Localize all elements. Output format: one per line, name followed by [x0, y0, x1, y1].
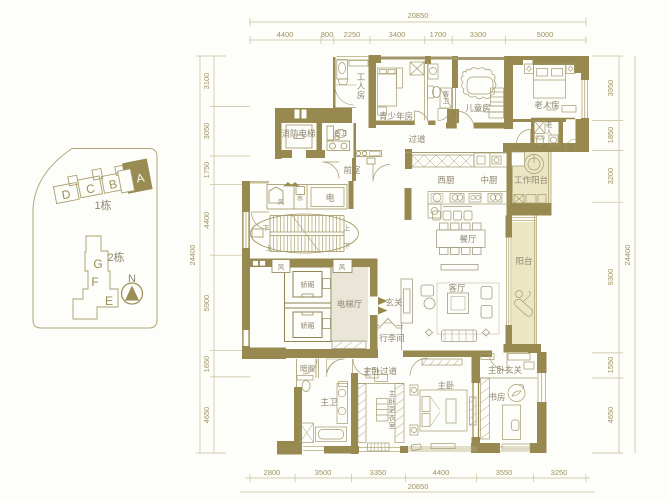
svg-text:主卧玄关: 主卧玄关 [488, 365, 523, 375]
svg-text:2栋: 2栋 [107, 250, 124, 264]
svg-text:更: 更 [389, 406, 396, 414]
svg-text:卧: 卧 [389, 398, 396, 406]
svg-text:1550: 1550 [606, 357, 615, 374]
svg-text:轿厢: 轿厢 [301, 280, 315, 289]
svg-text:风: 风 [339, 263, 346, 271]
svg-text:3300: 3300 [470, 30, 487, 39]
svg-text:卫: 卫 [443, 97, 450, 105]
svg-text:3400: 3400 [389, 30, 406, 39]
svg-text:2250: 2250 [344, 30, 361, 39]
svg-text:老人房: 老人房 [534, 100, 560, 110]
svg-text:工作阳台: 工作阳台 [514, 175, 548, 185]
svg-text:3250: 3250 [551, 468, 568, 477]
svg-text:儿童房: 儿童房 [465, 103, 491, 113]
svg-text:房: 房 [357, 90, 366, 100]
svg-text:电: 电 [325, 192, 334, 203]
svg-text:3050: 3050 [202, 123, 211, 140]
svg-text:2800: 2800 [264, 468, 281, 477]
svg-text:1850: 1850 [606, 127, 615, 144]
svg-text:24400: 24400 [623, 245, 632, 266]
svg-text:3550: 3550 [496, 468, 513, 477]
svg-text:5900: 5900 [202, 295, 211, 312]
svg-text:F: F [91, 275, 98, 289]
svg-text:4400: 4400 [202, 212, 211, 229]
svg-text:3350: 3350 [370, 468, 387, 477]
svg-text:前室: 前室 [343, 165, 361, 175]
svg-text:3950: 3950 [606, 80, 615, 97]
svg-text:消防电梯: 消防电梯 [281, 129, 316, 139]
svg-text:西厨: 西厨 [437, 175, 455, 185]
svg-text:E: E [105, 294, 113, 308]
svg-text:20850: 20850 [408, 11, 429, 20]
svg-text:主卫: 主卫 [320, 397, 338, 407]
svg-text:4650: 4650 [202, 407, 211, 424]
svg-text:3200: 3200 [606, 168, 615, 185]
svg-text:1栋: 1栋 [94, 198, 111, 212]
svg-text:阳台: 阳台 [515, 256, 532, 266]
svg-text:3500: 3500 [315, 468, 332, 477]
svg-text:风: 风 [278, 198, 285, 206]
svg-text:客卫: 客卫 [335, 129, 347, 137]
svg-text:中厨: 中厨 [480, 175, 498, 185]
svg-text:上: 上 [344, 223, 351, 232]
svg-text:3100: 3100 [202, 73, 211, 90]
svg-text:轿厢: 轿厢 [301, 321, 315, 330]
svg-text:玄关: 玄关 [385, 298, 403, 308]
svg-text:主卧过道: 主卧过道 [363, 366, 398, 376]
svg-text:5000: 5000 [537, 30, 554, 39]
svg-text:G: G [93, 257, 102, 271]
svg-text:衣: 衣 [389, 413, 396, 422]
svg-text:行李间: 行李间 [379, 333, 405, 343]
svg-text:水: 水 [297, 193, 304, 202]
svg-text:客厅: 客厅 [448, 283, 466, 293]
svg-text:1700: 1700 [430, 30, 447, 39]
svg-text:暗阁: 暗阁 [300, 363, 315, 373]
svg-text:上: 上 [266, 243, 273, 252]
svg-text:20850: 20850 [408, 482, 429, 491]
svg-text:下: 下 [344, 242, 351, 250]
svg-text:室: 室 [389, 421, 396, 430]
svg-text:书房: 书房 [488, 392, 505, 402]
svg-text:4400: 4400 [277, 30, 294, 39]
svg-text:老: 老 [546, 120, 553, 129]
svg-text:过道: 过道 [408, 134, 426, 144]
svg-text:800: 800 [321, 30, 334, 39]
svg-text:4400: 4400 [433, 468, 450, 477]
svg-text:风: 风 [278, 263, 285, 271]
svg-text:餐厅: 餐厅 [459, 234, 477, 244]
svg-text:主: 主 [389, 389, 396, 398]
svg-text:24400: 24400 [188, 245, 197, 266]
svg-text:1650: 1650 [202, 356, 211, 373]
svg-text:4650: 4650 [606, 407, 615, 424]
svg-text:1750: 1750 [202, 162, 211, 179]
svg-text:人: 人 [546, 128, 553, 136]
svg-text:青少年房: 青少年房 [379, 111, 413, 121]
svg-text:主卧: 主卧 [437, 381, 455, 391]
svg-text:电梯厅: 电梯厅 [337, 299, 363, 309]
svg-text:下: 下 [263, 224, 270, 232]
svg-text:客: 客 [443, 89, 450, 98]
svg-text:9300: 9300 [606, 269, 615, 286]
